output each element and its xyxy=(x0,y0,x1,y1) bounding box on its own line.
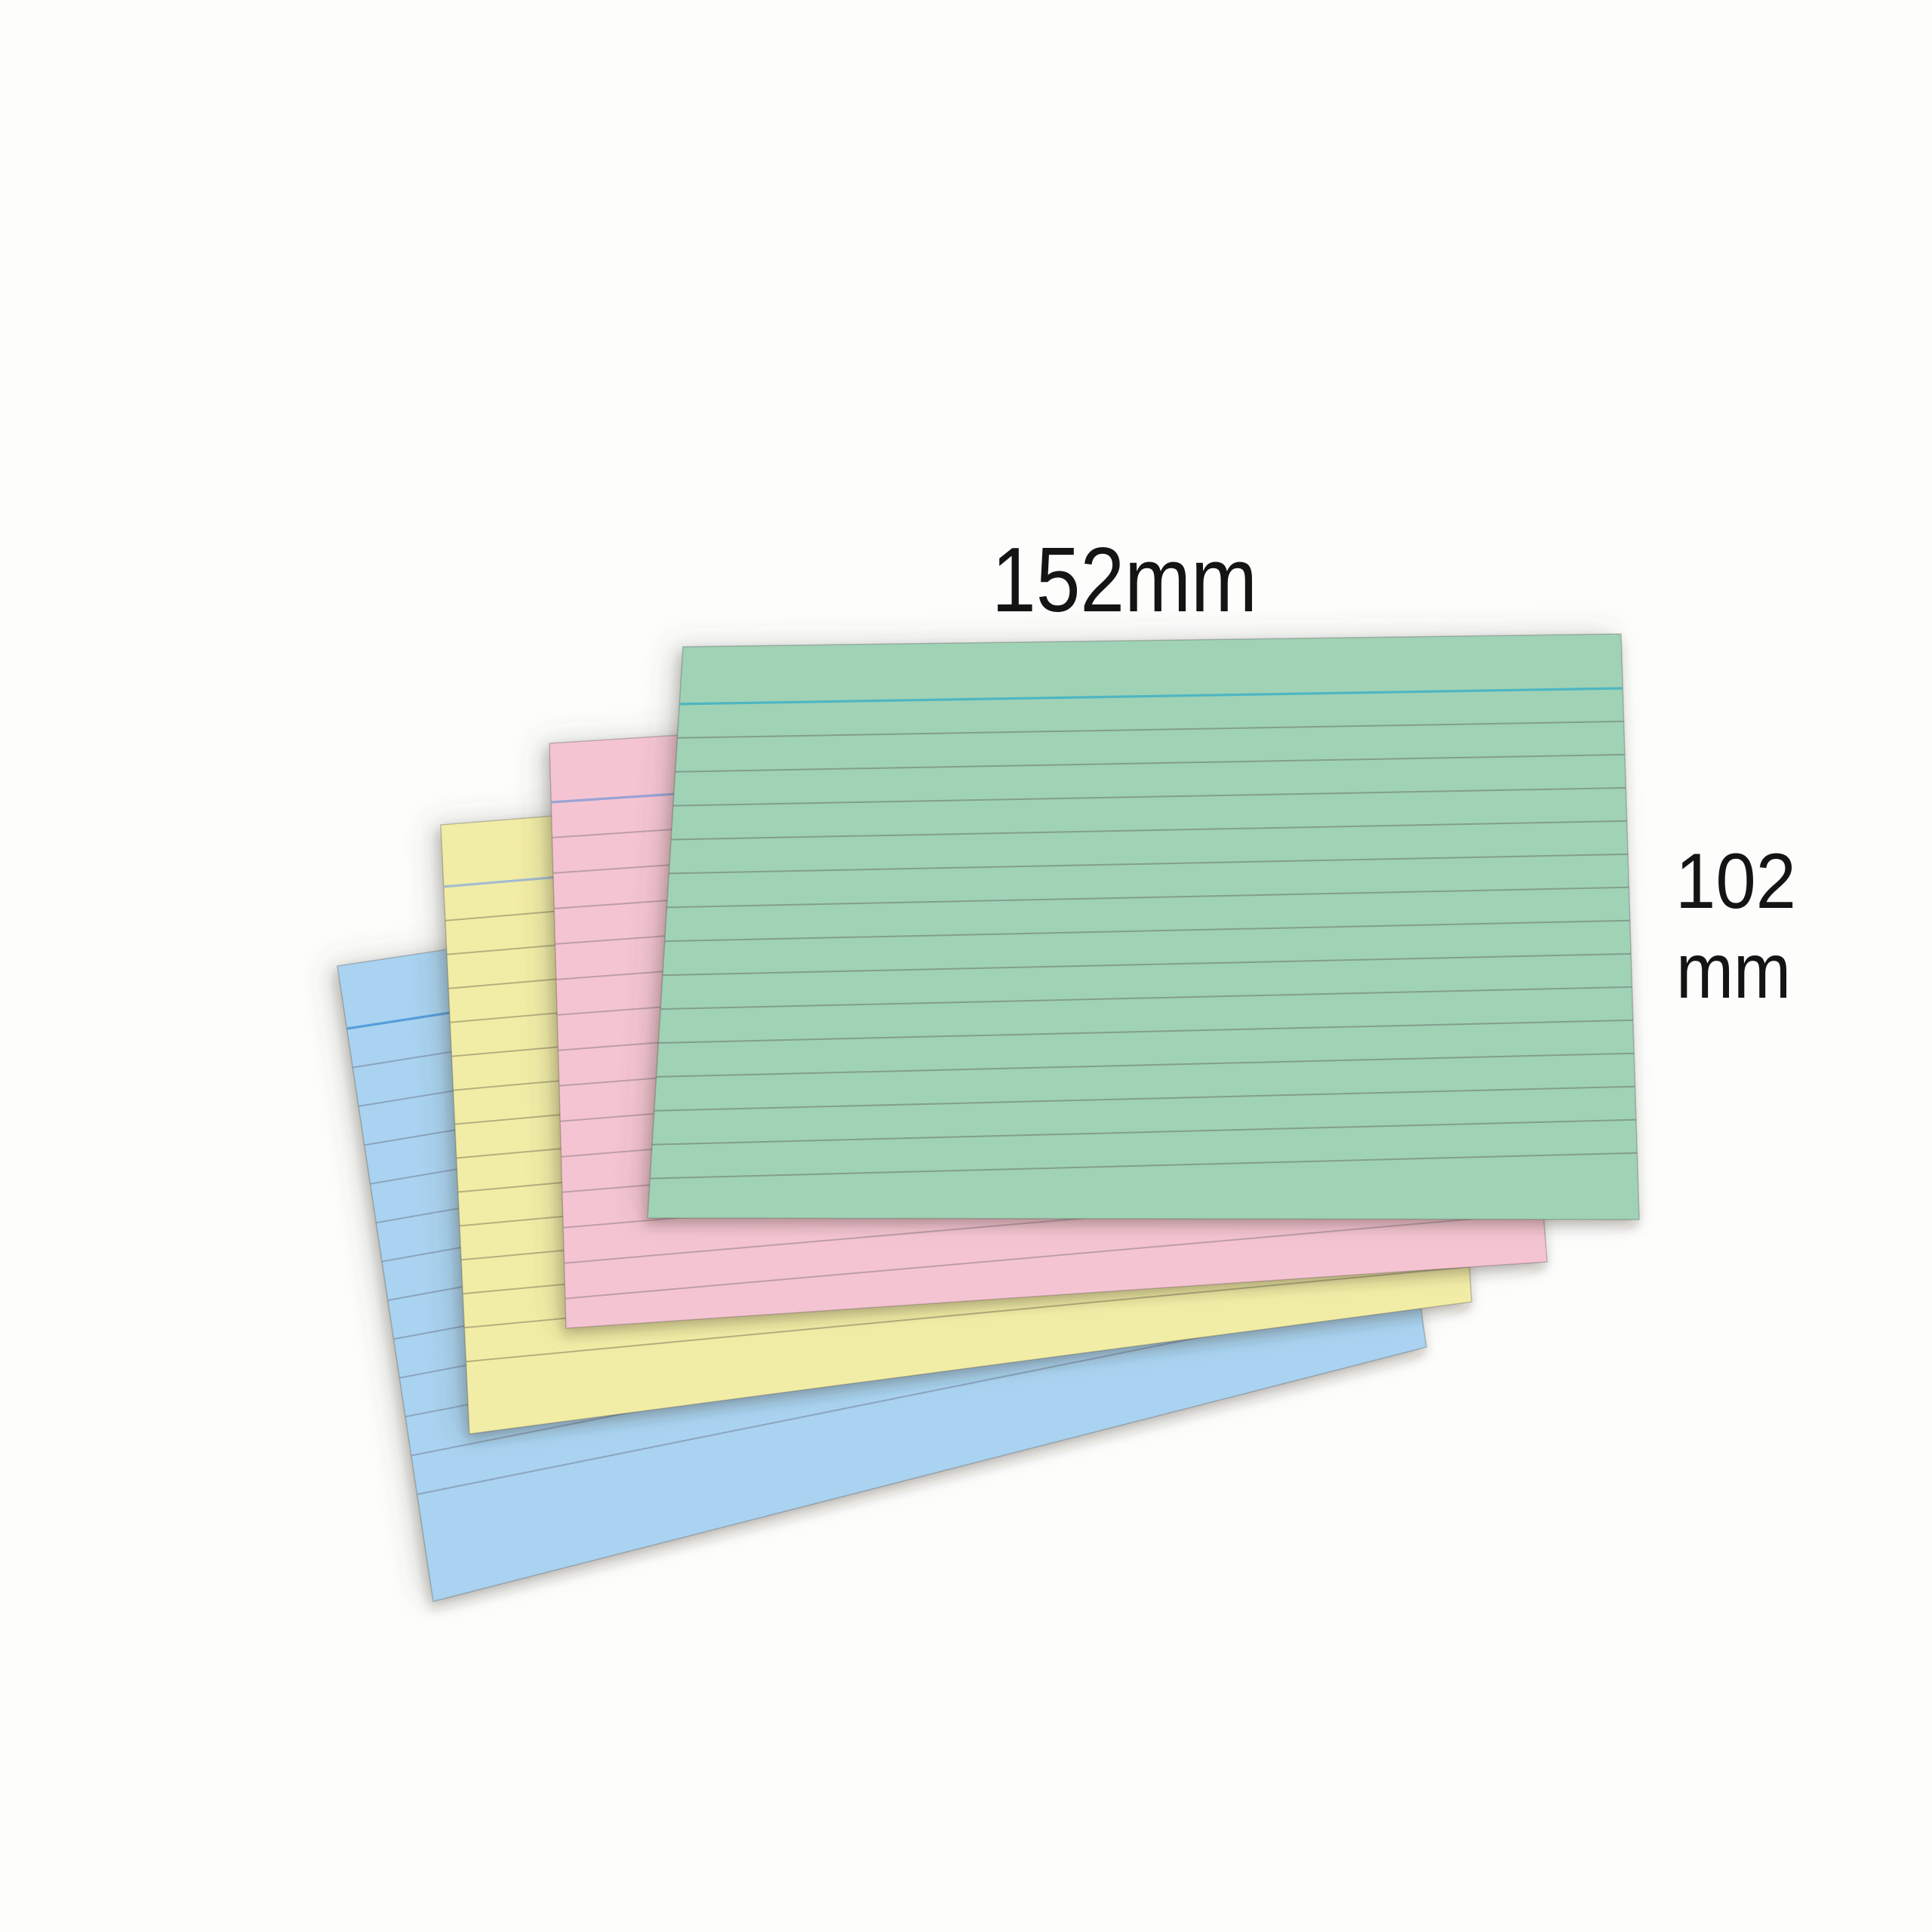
green-card-group xyxy=(648,634,1639,1220)
height-dimension-unit: mm xyxy=(1676,928,1791,1015)
card-stack xyxy=(337,634,1639,1601)
cards-scene: 152mm 102 mm xyxy=(0,0,1932,1932)
height-dimension-value: 102 xyxy=(1675,838,1796,925)
width-dimension-label: 152mm xyxy=(992,528,1257,631)
index-cards-product-photo: 152mm 102 mm xyxy=(0,0,1932,1932)
